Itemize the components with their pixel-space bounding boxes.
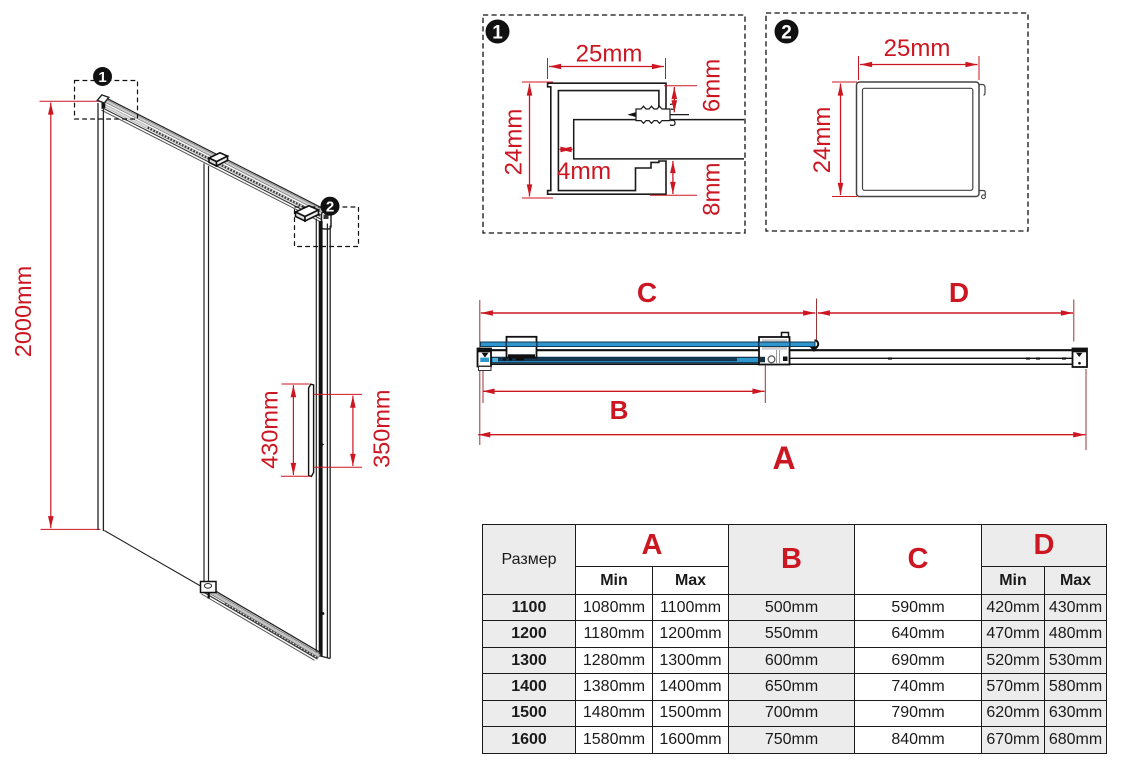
svg-text:8mm: 8mm xyxy=(699,163,726,216)
svg-text:D: D xyxy=(949,277,969,308)
svg-text:350mm: 350mm xyxy=(369,390,395,468)
svg-text:2: 2 xyxy=(781,23,792,44)
svg-text:24mm: 24mm xyxy=(809,107,836,174)
svg-text:A: A xyxy=(772,440,795,476)
svg-text:2: 2 xyxy=(326,199,334,216)
svg-text:B: B xyxy=(610,395,629,425)
svg-text:C: C xyxy=(637,277,657,308)
svg-text:25mm: 25mm xyxy=(884,35,951,62)
svg-text:6mm: 6mm xyxy=(699,59,726,112)
svg-text:25mm: 25mm xyxy=(576,41,643,68)
svg-text:2000mm: 2000mm xyxy=(10,266,36,357)
svg-text:1: 1 xyxy=(492,23,503,44)
svg-text:24mm: 24mm xyxy=(501,109,528,176)
svg-text:1: 1 xyxy=(98,69,106,86)
svg-text:4mm: 4mm xyxy=(557,158,611,185)
svg-text:430mm: 430mm xyxy=(257,390,283,468)
